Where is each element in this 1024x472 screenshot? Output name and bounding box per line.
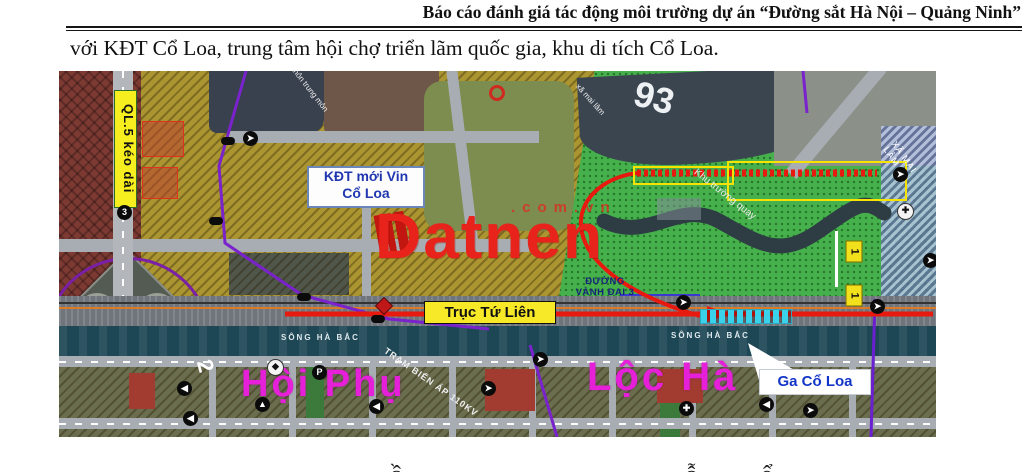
compass-icon: ✚ bbox=[897, 203, 914, 220]
diamond-marker-icon: ◆ bbox=[267, 359, 284, 376]
nav-arrow-icon: ➤ bbox=[481, 381, 496, 396]
map-figure: QL.5 kéo dài KĐT mới Vin Cổ Loa Trục Tứ … bbox=[59, 71, 936, 437]
nav-arrow-icon: ▲ bbox=[255, 397, 270, 412]
nav-arrow-icon: ➤ bbox=[243, 131, 258, 146]
clipped-next-line: ầỗể bbox=[0, 460, 1024, 472]
parking-icon: P bbox=[312, 365, 327, 380]
route-badge-3-icon: 3 bbox=[117, 205, 132, 220]
map-markers-layer: 3➤➤➤➤➤◀◀▲P◀➤➤✚◀➤✚◆ bbox=[59, 71, 936, 437]
road-point-icon bbox=[221, 137, 235, 145]
clipped-glyph: ỗ bbox=[685, 460, 698, 472]
nav-arrow-icon: ◀ bbox=[369, 399, 384, 414]
nav-arrow-icon: ➤ bbox=[676, 295, 691, 310]
page-header-title: Báo cáo đánh giá tác động môi trường dự … bbox=[423, 2, 1021, 23]
body-paragraph: với KĐT Cổ Loa, trung tâm hội chợ triển … bbox=[70, 36, 719, 61]
nav-arrow-icon: ➤ bbox=[533, 352, 548, 367]
report-page: Báo cáo đánh giá tác động môi trường dự … bbox=[0, 0, 1024, 472]
nav-arrow-icon: ◀ bbox=[759, 397, 774, 412]
road-point-icon bbox=[297, 293, 311, 301]
clipped-glyph: ể bbox=[761, 460, 773, 472]
red-ring-icon bbox=[489, 85, 505, 101]
road-point-icon bbox=[371, 315, 385, 323]
nav-arrow-icon: ➤ bbox=[803, 403, 818, 418]
road-point-icon bbox=[209, 217, 223, 225]
nav-arrow-icon: ◀ bbox=[177, 381, 192, 396]
header-divider bbox=[66, 26, 1022, 31]
crossing-icon: ✚ bbox=[679, 401, 694, 416]
nav-arrow-icon: ◀ bbox=[183, 411, 198, 426]
nav-arrow-icon: ➤ bbox=[870, 299, 885, 314]
clipped-glyph: ầ bbox=[391, 460, 403, 472]
nav-arrow-icon: ➤ bbox=[923, 253, 936, 268]
nav-arrow-icon: ➤ bbox=[893, 167, 908, 182]
